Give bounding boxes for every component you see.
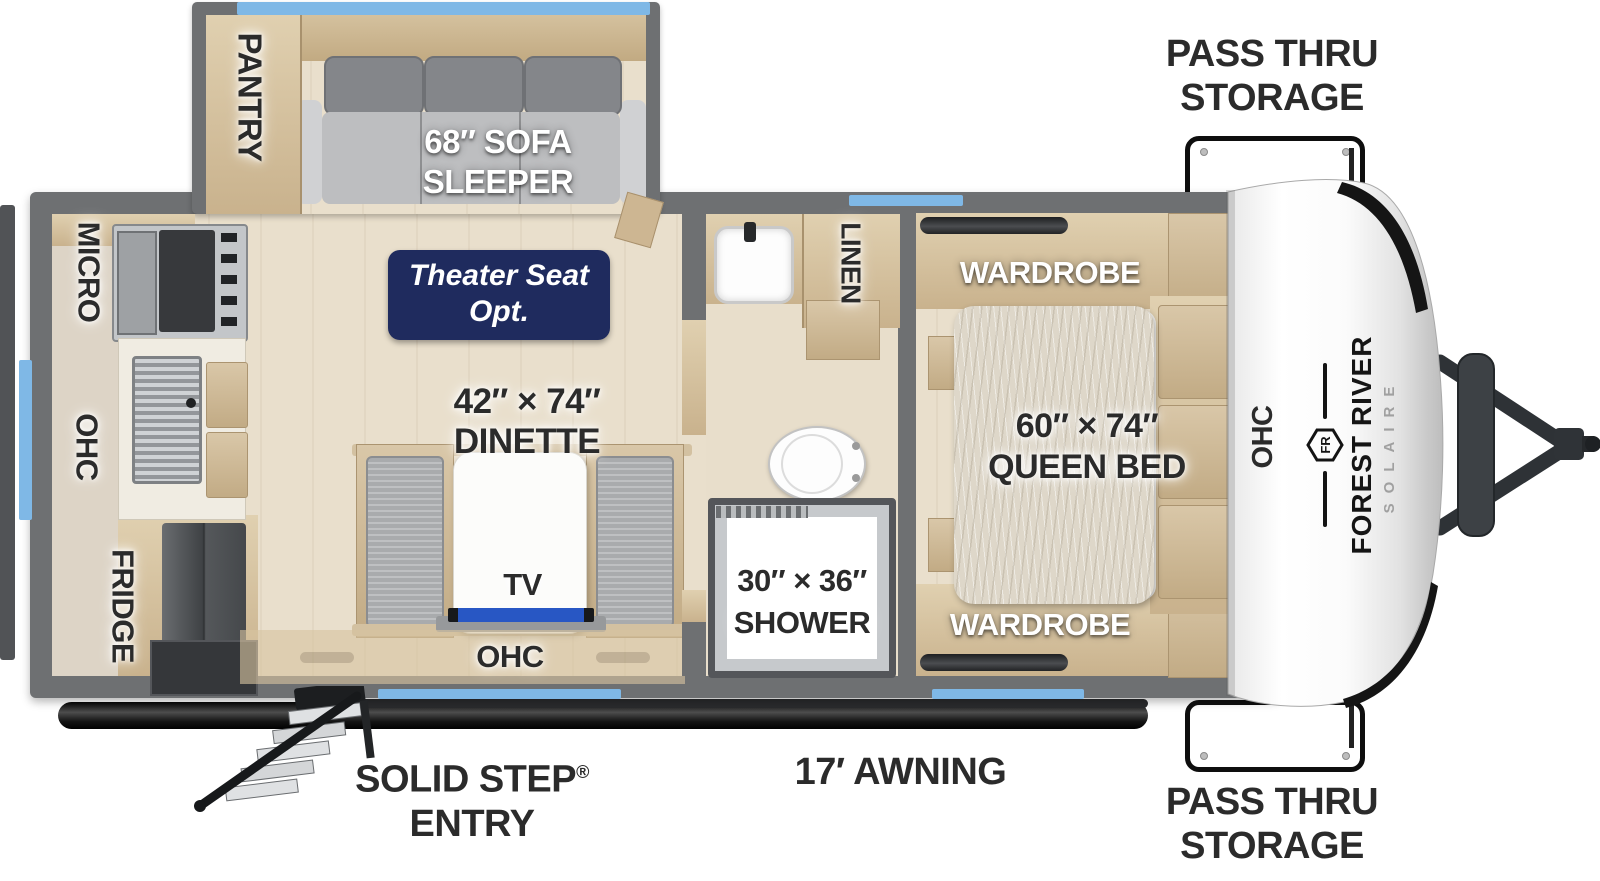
queen-bed-label: 60″ × 74″QUEEN BED (958, 406, 1216, 488)
window-strip-slideout (237, 2, 650, 15)
bathroom-wall-left (682, 214, 706, 320)
pass-thru-label-top: PASS THRUSTORAGE (1152, 32, 1392, 120)
bedroom-window-bar-top (920, 217, 1068, 234)
awning-label: 17′ AWNING (788, 751, 1013, 794)
sofa-arm-right (620, 100, 646, 204)
sofa-back-cushion (324, 56, 424, 116)
wardrobe-bottom-label: WARDROBE (920, 608, 1160, 643)
toilet-seat (781, 434, 843, 494)
pass-thru-label-bottom: PASS THRUSTORAGE (1152, 780, 1392, 868)
brand-dash (1323, 363, 1327, 419)
dinette-cushion-left (366, 456, 444, 628)
faucet (186, 398, 196, 408)
window-strip-bottom-bedroom (932, 689, 1084, 699)
shower-head-bar (716, 506, 808, 518)
toilet-hinge (852, 442, 860, 450)
bathroom-wall-right (898, 214, 916, 676)
shower-label: 30″ × 36″SHOWER (706, 560, 898, 644)
bed-front-cabinet (1158, 505, 1232, 599)
linen-shelf (806, 300, 880, 360)
floorplan-canvas: PANTRY 68″ SOFASLEEPER MICRO OHC FRIDGE … (0, 0, 1600, 881)
theater-seat-line2: Opt. (388, 294, 610, 330)
sofa-label: 68″ SOFASLEEPER (378, 122, 618, 202)
kitchen-cabinet-doors (206, 432, 248, 498)
ohc-handle (300, 652, 354, 663)
hitch (1436, 346, 1600, 542)
svg-text:FR: FR (1318, 436, 1333, 454)
brand-name: FOREST RIVER (1346, 336, 1378, 555)
window-strip-bottom-dinette (378, 689, 621, 699)
bathroom-door-jamb (682, 320, 706, 435)
kitchen-sink (132, 356, 202, 484)
awning-rail (330, 699, 1148, 708)
sofa-back-cushion (524, 56, 622, 116)
dinette-table (453, 452, 587, 634)
theater-seat-line1: Theater Seat (388, 258, 610, 294)
tv-unit (448, 608, 594, 622)
brand-dash (1323, 471, 1327, 527)
brand-lockup: FR FOREST RIVER SOLAIRE (1304, 295, 1400, 595)
forest-river-logo-icon: FR (1306, 428, 1344, 462)
tv-label: TV (480, 568, 565, 603)
brand-model: SOLAIRE (1381, 377, 1398, 514)
dinette-ohc-label: OHC (460, 640, 560, 675)
bathroom-wall-left-lower (682, 622, 706, 676)
window-strip-bedroom-top (849, 195, 963, 206)
kitchen-cabinet-doors (206, 362, 248, 428)
toilet-hinge (852, 474, 860, 482)
sofa-back-cushion (424, 56, 524, 116)
microwave (117, 231, 157, 335)
bed-front-cabinet (1158, 305, 1232, 399)
stove-knobs (221, 233, 237, 329)
wardrobe-top-label: WARDROBE (930, 256, 1170, 291)
ohc-handle (596, 652, 650, 663)
theater-seat-badge: Theater Seat Opt. (388, 250, 610, 340)
oven-cavity (159, 230, 215, 332)
dinette-label: 42″ × 74″DINETTE (397, 382, 657, 462)
bedroom-window-bar-bottom (920, 654, 1068, 671)
rear-bumper (0, 205, 15, 660)
bathroom-door-jamb (682, 590, 706, 622)
solid-step-entry-label: SOLID STEP® ENTRY (352, 750, 592, 846)
dinette-cushion-right (596, 456, 674, 628)
bathroom-faucet (744, 222, 756, 242)
window-strip-rear (19, 360, 32, 520)
